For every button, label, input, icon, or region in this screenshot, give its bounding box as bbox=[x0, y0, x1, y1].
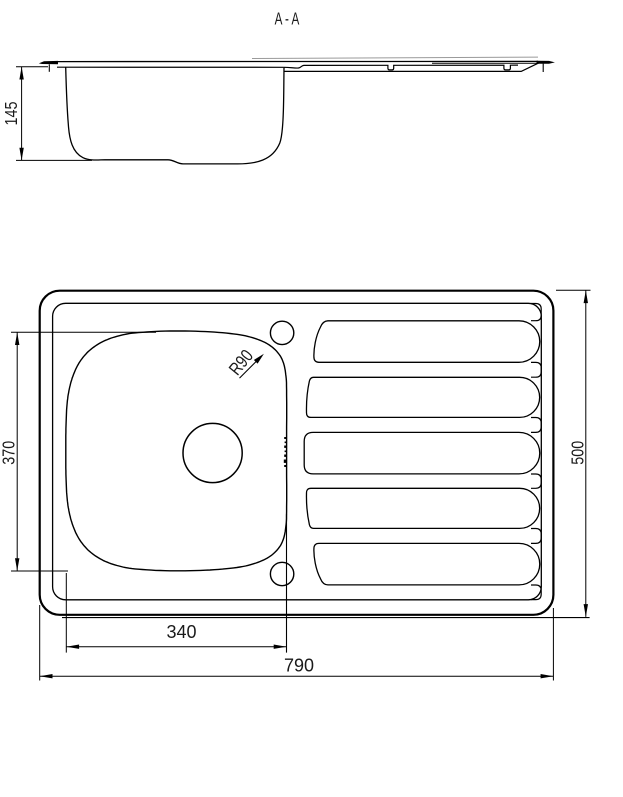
svg-text:790: 790 bbox=[284, 656, 314, 676]
svg-text:340: 340 bbox=[166, 622, 196, 642]
svg-text:A - A: A - A bbox=[275, 9, 300, 29]
svg-text:370: 370 bbox=[0, 441, 19, 465]
svg-text:500: 500 bbox=[568, 441, 588, 465]
svg-text:145: 145 bbox=[2, 101, 22, 125]
